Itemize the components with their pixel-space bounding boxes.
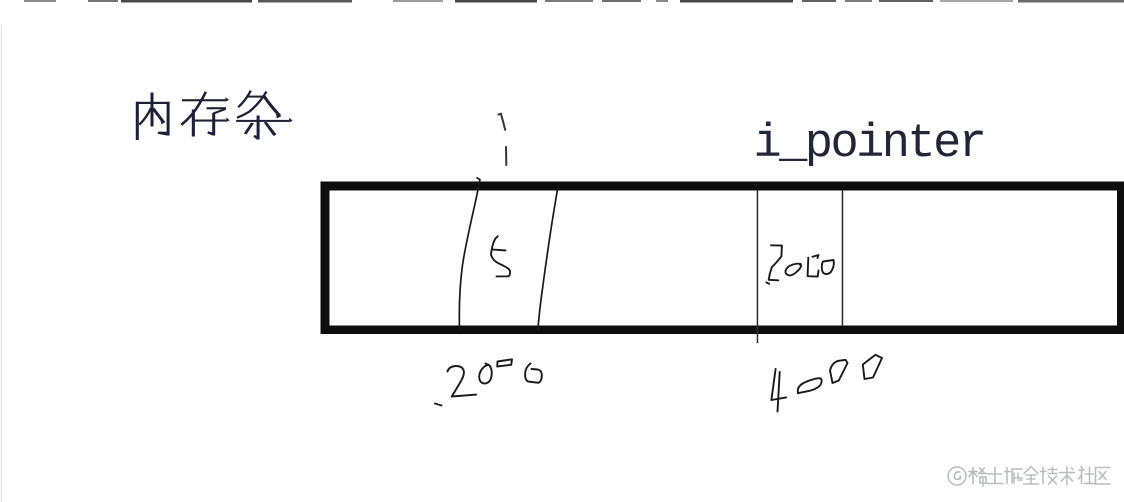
svg-text:i_pointer: i_pointer: [754, 118, 985, 171]
